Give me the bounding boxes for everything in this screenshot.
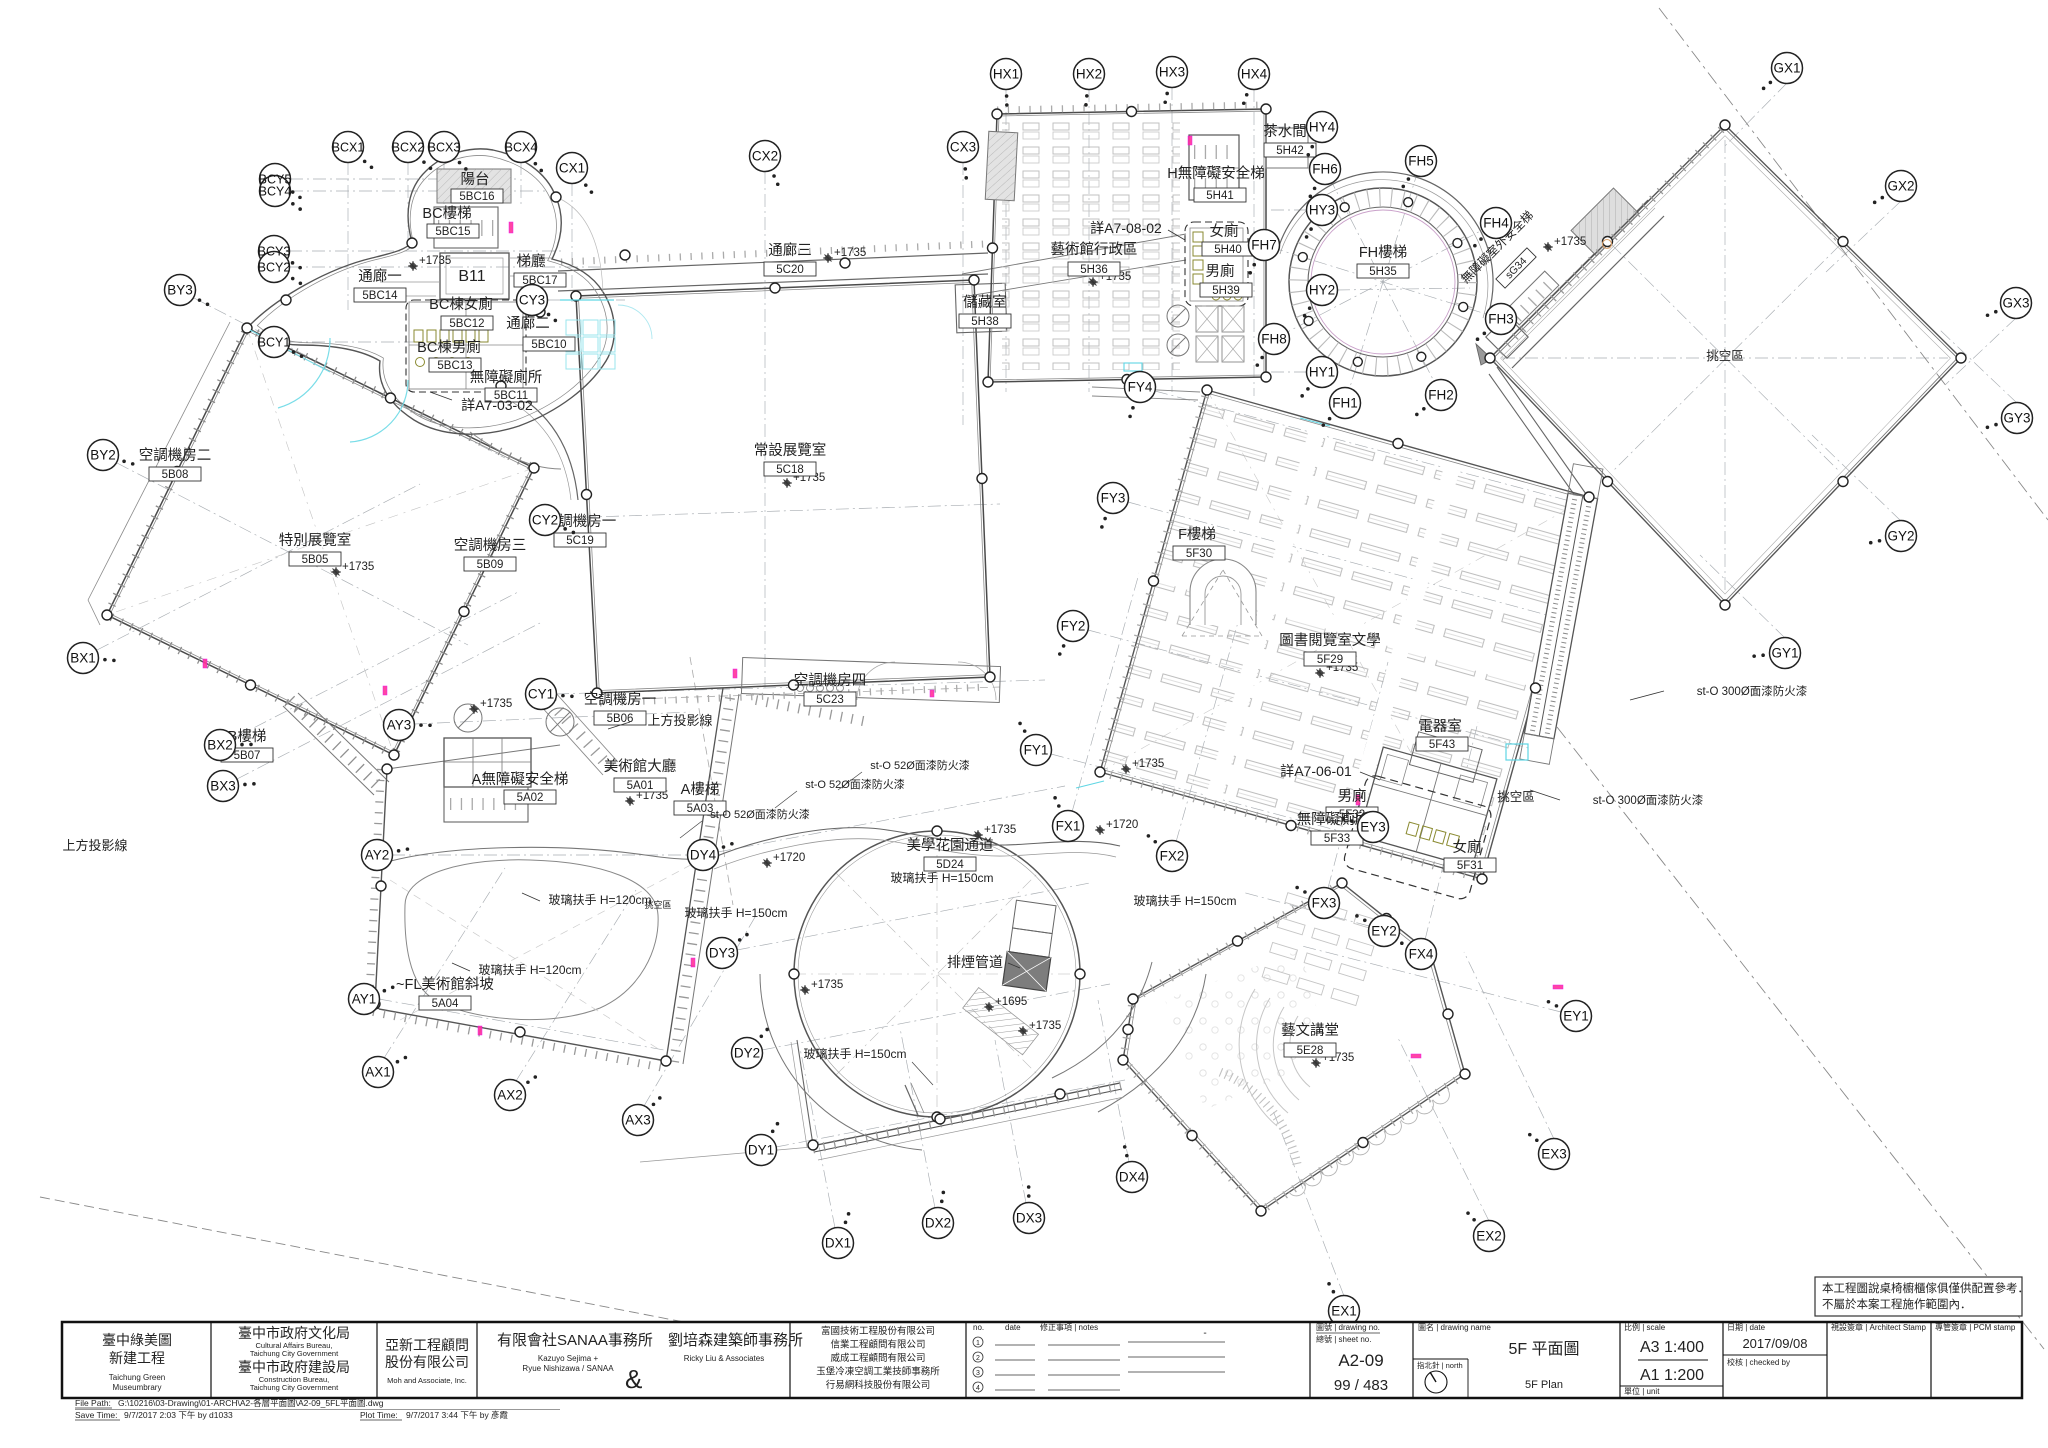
svg-text:特別展覽室: 特別展覽室 [279, 532, 352, 549]
svg-text:2: 2 [976, 1355, 980, 1362]
svg-text:5F Plan: 5F Plan [1525, 1379, 1563, 1391]
svg-text:5A04: 5A04 [432, 998, 459, 1010]
svg-text:有限會社SANAA事務所: 有限會社SANAA事務所 [497, 1332, 653, 1349]
svg-text:st-O 300Ø面漆防火漆: st-O 300Ø面漆防火漆 [1697, 684, 1808, 698]
svg-text:HX4: HX4 [1241, 67, 1268, 82]
svg-text:詳A7-03-02: 詳A7-03-02 [461, 397, 533, 413]
svg-text:5F29: 5F29 [1317, 654, 1343, 666]
svg-text:FX2: FX2 [1160, 849, 1185, 864]
svg-text:GX2: GX2 [1887, 179, 1914, 194]
svg-text:5B09: 5B09 [477, 559, 504, 571]
svg-text:HX1: HX1 [993, 67, 1019, 82]
svg-text:BCX2: BCX2 [392, 141, 425, 155]
svg-text:DX1: DX1 [825, 1236, 851, 1251]
svg-text:美學花園通道: 美學花園通道 [907, 836, 994, 854]
svg-text:女廁: 女廁 [1210, 222, 1239, 240]
svg-text:圖號 | drawing no.: 圖號 | drawing no. [1316, 1322, 1380, 1332]
svg-text:EY2: EY2 [1371, 924, 1397, 939]
svg-text:Taichung City Government: Taichung City Government [250, 1383, 339, 1392]
svg-text:玻璃扶手 H=120cm: 玻璃扶手 H=120cm [478, 962, 581, 977]
svg-text:詳A7-08-02: 詳A7-08-02 [1090, 220, 1162, 236]
svg-text:空調機房四: 空調機房四 [794, 672, 867, 689]
svg-text:BX2: BX2 [207, 738, 233, 753]
svg-text:no.: no. [973, 1323, 984, 1332]
svg-text:修正事項 | notes: 修正事項 | notes [1040, 1322, 1098, 1332]
svg-text:99 / 483: 99 / 483 [1334, 1377, 1388, 1394]
svg-text:股份有限公司: 股份有限公司 [385, 1354, 469, 1370]
svg-text:5H35: 5H35 [1369, 266, 1397, 278]
svg-text:1: 1 [976, 1340, 980, 1347]
svg-text:常設展覽室: 常設展覽室 [754, 442, 827, 459]
svg-text:挑空區: 挑空區 [644, 899, 671, 910]
svg-text:5A01: 5A01 [627, 780, 654, 792]
svg-text:FH3: FH3 [1488, 312, 1514, 327]
svg-text:+1735: +1735 [1132, 758, 1164, 770]
svg-text:劉培森建築師事務所: 劉培森建築師事務所 [668, 1331, 803, 1349]
svg-text:茶水間: 茶水間 [1263, 123, 1307, 140]
svg-text:電器室: 電器室 [1418, 718, 1462, 735]
svg-text:BX3: BX3 [210, 779, 236, 794]
svg-text:玻璃扶手 H=120cm: 玻璃扶手 H=120cm [548, 892, 651, 907]
svg-text:校核 | checked by: 校核 | checked by [1727, 1357, 1790, 1367]
svg-text:5BC14: 5BC14 [362, 290, 398, 302]
svg-text:玻璃扶手 H=150cm: 玻璃扶手 H=150cm [1133, 893, 1236, 908]
svg-text:+1735: +1735 [1554, 236, 1586, 248]
svg-text:5H39: 5H39 [1212, 285, 1240, 297]
svg-text:5C20: 5C20 [776, 264, 804, 276]
svg-text:5H38: 5H38 [971, 316, 999, 328]
svg-text:st-O 52Ø面漆防火漆: st-O 52Ø面漆防火漆 [870, 758, 970, 772]
svg-text:臺中綠美圖: 臺中綠美圖 [102, 1332, 172, 1348]
svg-text:~FL美術館斜坡: ~FL美術館斜坡 [396, 976, 494, 993]
svg-text:5C19: 5C19 [566, 535, 594, 547]
svg-text:+1695: +1695 [995, 996, 1027, 1008]
svg-text:日期 | date: 日期 | date [1727, 1323, 1766, 1332]
svg-text:威成工程顧問有限公司: 威成工程顧問有限公司 [830, 1352, 925, 1364]
svg-text:儲藏室: 儲藏室 [963, 294, 1007, 311]
svg-text:5D24: 5D24 [936, 859, 964, 871]
svg-text:信業工程顧問有限公司: 信業工程顧問有限公司 [830, 1339, 925, 1351]
svg-text:上方投影線: 上方投影線 [62, 838, 127, 853]
svg-text:5F43: 5F43 [1429, 739, 1455, 751]
svg-text:A1 1:200: A1 1:200 [1640, 1367, 1704, 1384]
svg-text:FH4: FH4 [1483, 216, 1509, 231]
svg-text:FH樓梯: FH樓梯 [1359, 244, 1407, 261]
svg-text:+1735: +1735 [480, 698, 512, 710]
svg-text:A3 1:400: A3 1:400 [1640, 1339, 1704, 1356]
svg-text:5BC16: 5BC16 [459, 191, 494, 203]
svg-text:Kazuyo Sejima +: Kazuyo Sejima + [538, 1354, 599, 1363]
svg-text:陽台: 陽台 [461, 171, 490, 188]
svg-text:+1735: +1735 [811, 979, 843, 991]
svg-text:藝術館行政區: 藝術館行政區 [1051, 241, 1138, 258]
svg-text:AY2: AY2 [365, 848, 390, 863]
svg-text:通廊一: 通廊一 [358, 268, 402, 285]
svg-text:FY1: FY1 [1024, 743, 1049, 758]
svg-text:HY2: HY2 [1309, 283, 1335, 298]
svg-text:Moh and Associate, Inc.: Moh and Associate, Inc. [387, 1376, 467, 1385]
svg-text:玻璃扶手 H=150cm: 玻璃扶手 H=150cm [684, 905, 787, 920]
svg-text:F樓梯: F樓梯 [1178, 526, 1216, 543]
svg-text:無障礙廁所: 無障礙廁所 [470, 368, 543, 386]
svg-text:BY2: BY2 [90, 448, 116, 463]
svg-text:FH5: FH5 [1408, 154, 1434, 169]
svg-text:HY1: HY1 [1309, 365, 1335, 380]
svg-text:FX4: FX4 [1409, 947, 1434, 962]
svg-text:-: - [1203, 1328, 1206, 1339]
svg-text:玉堡冷凍空調工業技師事務所: 玉堡冷凍空調工業技師事務所 [816, 1366, 940, 1378]
svg-text:Plot Time:: Plot Time: [360, 1410, 398, 1420]
svg-text:H無障礙安全梯: H無障礙安全梯 [1167, 164, 1264, 182]
svg-text:挑空區: 挑空區 [1706, 349, 1744, 363]
svg-text:CY1: CY1 [528, 687, 554, 702]
svg-text:DY4: DY4 [690, 848, 717, 863]
svg-text:G:\10216\03-Drawing\01-ARCH\A2: G:\10216\03-Drawing\01-ARCH\A2-各層平面圖\A2-… [118, 1398, 384, 1408]
svg-text:上方投影線: 上方投影線 [647, 713, 712, 728]
svg-text:5F30: 5F30 [1186, 548, 1212, 560]
svg-text:5B08: 5B08 [162, 469, 189, 481]
svg-text:5B05: 5B05 [302, 554, 329, 566]
svg-text:不屬於本案工程施作範圍內．: 不屬於本案工程施作範圍內． [1822, 1297, 1972, 1311]
svg-text:DY2: DY2 [734, 1046, 760, 1061]
svg-text:亞新工程顧問: 亞新工程顧問 [385, 1337, 469, 1353]
svg-text:BCY1: BCY1 [258, 336, 291, 350]
svg-text:BCY4: BCY4 [259, 185, 292, 199]
svg-text:date: date [1005, 1323, 1021, 1332]
svg-text:GY1: GY1 [1771, 646, 1798, 661]
svg-text:Ryue Nishizawa / SANAA: Ryue Nishizawa / SANAA [522, 1364, 614, 1373]
svg-text:BC樓梯: BC樓梯 [422, 205, 471, 222]
svg-text:BC棟女廁: BC棟女廁 [429, 295, 493, 313]
svg-text:FY2: FY2 [1061, 619, 1086, 634]
svg-text:HY3: HY3 [1309, 203, 1335, 218]
svg-text:AY1: AY1 [352, 992, 377, 1007]
svg-text:CY2: CY2 [532, 513, 558, 528]
svg-text:詳A7-06-01: 詳A7-06-01 [1280, 763, 1352, 779]
svg-text:男廁: 男廁 [1206, 262, 1235, 280]
svg-text:CX1: CX1 [559, 161, 585, 176]
svg-text:2017/09/08: 2017/09/08 [1742, 1336, 1807, 1351]
svg-text:File Path:: File Path: [75, 1398, 111, 1408]
svg-text:FY3: FY3 [1101, 491, 1126, 506]
svg-text:5H41: 5H41 [1206, 190, 1234, 202]
svg-text:專管簽章 | PCM stamp: 專管簽章 | PCM stamp [1935, 1322, 2016, 1332]
svg-text:BY3: BY3 [167, 283, 193, 298]
svg-text:HX3: HX3 [1159, 65, 1185, 80]
svg-text:BCX4: BCX4 [505, 141, 538, 155]
svg-text:空調機房一: 空調機房一 [584, 691, 657, 708]
svg-text:行易網科技股份有限公司: 行易網科技股份有限公司 [826, 1379, 931, 1391]
svg-text:5H42: 5H42 [1276, 145, 1304, 157]
svg-text:BCY2: BCY2 [258, 261, 291, 275]
svg-text:5E28: 5E28 [1297, 1045, 1324, 1057]
svg-text:GX1: GX1 [1773, 61, 1800, 76]
svg-text:5F31: 5F31 [1457, 860, 1483, 872]
svg-text:BX1: BX1 [70, 651, 96, 666]
svg-text:5BC12: 5BC12 [449, 318, 484, 330]
svg-text:玻璃扶手 H=150cm: 玻璃扶手 H=150cm [803, 1046, 906, 1061]
svg-text:HY4: HY4 [1309, 120, 1336, 135]
svg-text:空調機房三: 空調機房三 [454, 537, 527, 554]
svg-text:比例 | scale: 比例 | scale [1624, 1322, 1666, 1332]
svg-text:藝文講堂: 藝文講堂 [1281, 1022, 1339, 1039]
svg-text:FH7: FH7 [1251, 238, 1277, 253]
svg-text:BC棟男廁: BC棟男廁 [417, 338, 481, 356]
svg-text:5F 平面圖: 5F 平面圖 [1508, 1341, 1579, 1358]
svg-text:美術館大廳: 美術館大廳 [604, 757, 677, 775]
svg-text:Ricky Liu & Associates: Ricky Liu & Associates [684, 1354, 764, 1363]
svg-text:女廁: 女廁 [1453, 838, 1482, 856]
svg-text:&: & [625, 1364, 642, 1394]
svg-text:+1720: +1720 [773, 852, 805, 864]
svg-text:Museumbrary: Museumbrary [113, 1383, 162, 1392]
svg-text:5H36: 5H36 [1080, 264, 1108, 276]
svg-text:FH2: FH2 [1428, 388, 1454, 403]
svg-text:3: 3 [976, 1370, 980, 1377]
svg-text:st-O 52Ø面漆防火漆: st-O 52Ø面漆防火漆 [710, 807, 810, 821]
svg-text:EY1: EY1 [1563, 1009, 1589, 1024]
svg-text:FH6: FH6 [1312, 162, 1338, 177]
svg-text:梯廳: 梯廳 [517, 252, 546, 270]
svg-text:+1735: +1735 [834, 247, 866, 259]
svg-text:DX2: DX2 [925, 1216, 951, 1231]
svg-text:富國技術工程股份有限公司: 富國技術工程股份有限公司 [821, 1325, 935, 1337]
svg-text:A2-09: A2-09 [1338, 1351, 1383, 1370]
svg-text:st-O 300Ø面漆防火漆: st-O 300Ø面漆防火漆 [1593, 793, 1704, 807]
svg-text:排煙管道: 排煙管道 [947, 954, 1003, 970]
svg-text:AX2: AX2 [497, 1088, 523, 1103]
svg-text:總號 | sheet no.: 總號 | sheet no. [1316, 1334, 1371, 1344]
svg-text:A無障礙安全梯: A無障礙安全梯 [472, 770, 569, 788]
svg-text:+1735: +1735 [984, 824, 1016, 836]
svg-text:5BC10: 5BC10 [531, 339, 566, 351]
svg-text:DY1: DY1 [748, 1143, 774, 1158]
svg-text:st-O 52Ø面漆防火漆: st-O 52Ø面漆防火漆 [805, 777, 905, 791]
svg-text:新建工程: 新建工程 [109, 1350, 165, 1366]
svg-text:FX3: FX3 [1312, 896, 1337, 911]
svg-text:4: 4 [976, 1385, 980, 1392]
svg-text:FX1: FX1 [1056, 819, 1081, 834]
svg-text:9/7/2017 2:03 下午 by d1033: 9/7/2017 2:03 下午 by d1033 [124, 1410, 233, 1420]
svg-text:BCX3: BCX3 [428, 141, 461, 155]
svg-text:EY3: EY3 [1360, 820, 1386, 835]
svg-text:CY3: CY3 [519, 293, 545, 308]
svg-text:+1735: +1735 [1029, 1020, 1061, 1032]
svg-text:AX1: AX1 [365, 1065, 391, 1080]
svg-text:圖書閱覽室文學: 圖書閱覽室文學 [1279, 631, 1381, 649]
svg-text:FH1: FH1 [1332, 396, 1358, 411]
svg-text:DX3: DX3 [1016, 1211, 1042, 1226]
svg-text:B11: B11 [458, 268, 485, 285]
svg-text:視設簽章 | Architect Stamp: 視設簽章 | Architect Stamp [1831, 1322, 1927, 1332]
svg-text:本工程圖說桌椅櫥櫃傢俱僅供配置參考．: 本工程圖說桌椅櫥櫃傢俱僅供配置參考． [1822, 1281, 2029, 1295]
svg-text:5B06: 5B06 [607, 713, 634, 725]
svg-text:圖名 | drawing name: 圖名 | drawing name [1418, 1322, 1491, 1332]
svg-text:FH8: FH8 [1261, 332, 1287, 347]
svg-text:指北針 | north: 指北針 | north [1417, 1360, 1463, 1370]
svg-text:GX3: GX3 [2002, 296, 2029, 311]
svg-text:+1720: +1720 [1106, 819, 1138, 831]
svg-text:AX3: AX3 [625, 1113, 651, 1128]
svg-text:CX3: CX3 [950, 140, 976, 155]
svg-text:9/7/2017 3:44 下午 by 彥霞: 9/7/2017 3:44 下午 by 彥霞 [406, 1410, 509, 1420]
svg-text:HX2: HX2 [1076, 67, 1102, 82]
svg-text:Save Time:: Save Time: [75, 1410, 118, 1420]
svg-text:5A02: 5A02 [517, 792, 544, 804]
svg-text:Taichung City Government: Taichung City Government [250, 1349, 339, 1358]
svg-text:5B07: 5B07 [234, 750, 261, 762]
svg-text:5BC13: 5BC13 [437, 360, 472, 372]
svg-text:EX1: EX1 [1331, 1304, 1357, 1319]
svg-text:通廊二: 通廊二 [506, 315, 550, 332]
svg-text:Taichung Green: Taichung Green [109, 1373, 165, 1382]
svg-text:5BC15: 5BC15 [435, 226, 470, 238]
svg-text:空調機房二: 空調機房二 [139, 447, 212, 464]
svg-text:DY3: DY3 [709, 946, 735, 961]
svg-text:GY2: GY2 [1887, 529, 1914, 544]
svg-text:+1735: +1735 [342, 561, 374, 573]
svg-text:挑空區: 挑空區 [1497, 790, 1535, 804]
svg-text:FY4: FY4 [1128, 380, 1153, 395]
svg-text:5C23: 5C23 [816, 694, 844, 706]
svg-text:EX3: EX3 [1541, 1147, 1567, 1162]
svg-text:臺中市政府建設局: 臺中市政府建設局 [238, 1359, 350, 1375]
svg-text:CX2: CX2 [752, 149, 778, 164]
svg-text:單位 | unit: 單位 | unit [1624, 1386, 1660, 1396]
svg-text:5H40: 5H40 [1214, 244, 1242, 256]
svg-text:5C18: 5C18 [776, 464, 804, 476]
svg-text:EX2: EX2 [1476, 1229, 1502, 1244]
svg-text:5F33: 5F33 [1324, 833, 1350, 845]
svg-text:玻璃扶手 H=150cm: 玻璃扶手 H=150cm [890, 870, 993, 885]
svg-text:通廊三: 通廊三 [768, 242, 812, 259]
svg-text:BCX1: BCX1 [332, 141, 365, 155]
svg-text:GY3: GY3 [2003, 411, 2030, 426]
svg-text:A樓梯: A樓梯 [681, 781, 720, 798]
svg-text:AY3: AY3 [387, 718, 412, 733]
svg-text:+1735: +1735 [419, 255, 451, 267]
svg-text:BCY3: BCY3 [258, 245, 291, 259]
svg-text:臺中市政府文化局: 臺中市政府文化局 [238, 1325, 350, 1341]
svg-text:男廁: 男廁 [1338, 787, 1367, 805]
svg-text:DX4: DX4 [1119, 1170, 1146, 1185]
